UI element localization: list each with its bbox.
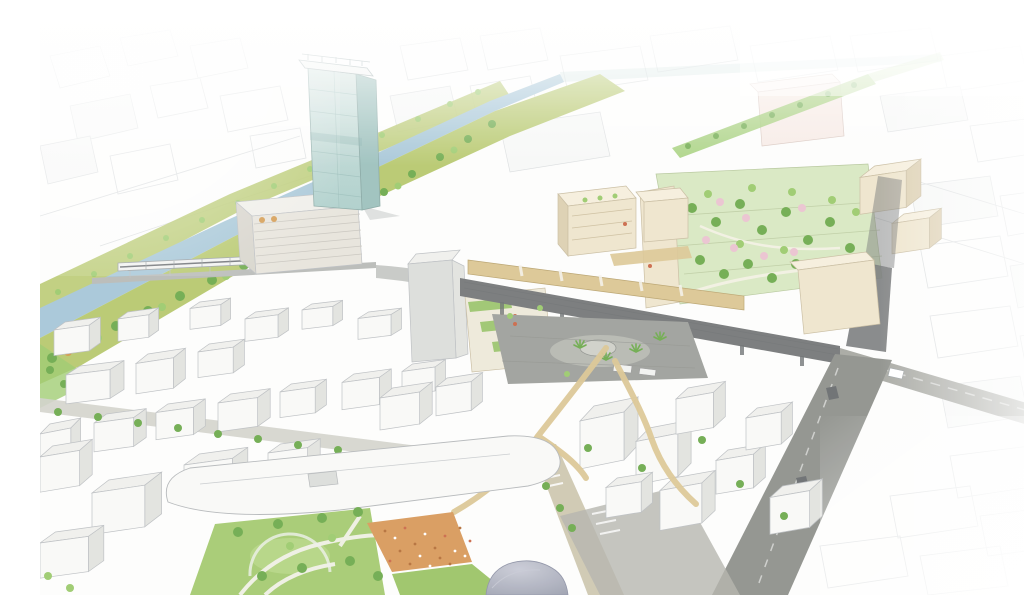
- fade-overlays: [40, 16, 1024, 595]
- aerial-masterplan-illustration: [40, 16, 1024, 595]
- illustration-canvas: [40, 16, 1024, 595]
